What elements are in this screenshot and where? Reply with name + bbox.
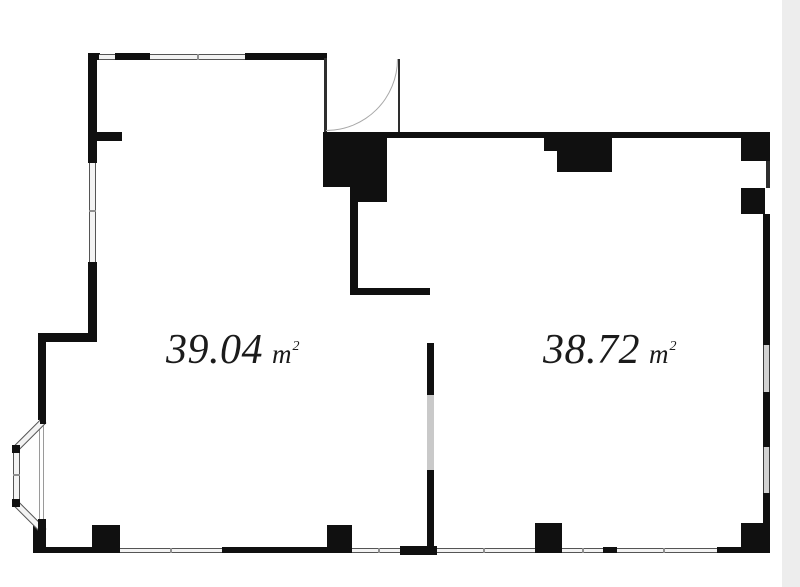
door-swing-arc xyxy=(326,59,398,131)
floor-plan: 39.04m2 38.72m2 xyxy=(0,0,800,587)
wall-bottom-seg-3 xyxy=(717,547,741,553)
wall-block-entry-ext xyxy=(350,187,387,202)
wall-right-seg-2 xyxy=(763,392,770,447)
wall-pillar-bottom-1 xyxy=(92,525,120,553)
wall-block-top-step xyxy=(544,132,557,151)
window-mullion xyxy=(89,210,96,212)
bay-chord-line-inner xyxy=(39,420,40,522)
window-mullion xyxy=(483,548,485,554)
wall-block-top-main xyxy=(557,132,612,172)
wall-partition-upper-vertical xyxy=(350,202,358,295)
wall-left-seg-3 xyxy=(38,342,46,420)
wall-pillar-bottom-2 xyxy=(327,525,352,553)
left-room-area-label: 39.04m2 xyxy=(166,329,300,371)
right-room-area-exponent: 2 xyxy=(670,339,677,354)
wall-right-block-2 xyxy=(741,188,765,214)
bay-window-front xyxy=(13,449,20,502)
wall-bottom-seg-2 xyxy=(222,547,327,553)
wall-corner-bottom-right-block xyxy=(741,523,770,553)
wall-partition-lower-seg-2 xyxy=(427,470,434,548)
wall-right-seg-3 xyxy=(763,493,770,523)
left-room-area-exponent: 2 xyxy=(293,339,300,354)
wall-left-seg-1 xyxy=(88,53,97,163)
window-bottom-2 xyxy=(352,548,403,554)
window-bottom-1 xyxy=(120,548,222,554)
door-jamb xyxy=(398,59,400,133)
bay-corner-cap-3 xyxy=(12,499,20,507)
window-bottom-5 xyxy=(617,548,717,554)
window-mullion xyxy=(663,548,665,554)
wall-bottom-tick-block xyxy=(603,547,617,553)
wall-partition-horizontal xyxy=(350,288,430,295)
window-bottom-4 xyxy=(562,548,603,554)
window-mullion xyxy=(378,548,380,554)
right-room-area-label: 38.72m2 xyxy=(543,329,677,371)
bay-chord-line-outer xyxy=(43,420,44,522)
wall-left-jog xyxy=(38,333,97,342)
left-room-area-unit: m xyxy=(272,339,292,369)
right-gutter xyxy=(782,0,800,587)
wall-top-seg-2 xyxy=(245,53,327,60)
wall-top-seg-1 xyxy=(115,53,150,60)
bay-corner-cap-2 xyxy=(12,445,20,453)
window-mullion xyxy=(170,548,172,554)
wall-partition-gray-segment xyxy=(427,395,434,470)
right-room-area-unit: m xyxy=(649,339,669,369)
wall-partition-lower-seg-1 xyxy=(427,343,434,395)
window-bottom-3 xyxy=(437,548,535,554)
bay-corner-cap-1 xyxy=(40,416,46,424)
window-right-upper xyxy=(763,345,770,392)
window-mullion xyxy=(582,548,584,554)
window-left xyxy=(89,163,96,262)
window-top-large xyxy=(150,54,245,60)
left-room-area-value: 39.04 xyxy=(166,327,263,373)
wall-pillar-bottom-3 xyxy=(535,523,562,553)
wall-corner-top-right-block xyxy=(741,132,770,161)
window-right-lower xyxy=(763,447,770,493)
window-mullion xyxy=(197,54,199,60)
window-mullion xyxy=(13,474,20,476)
wall-block-entry-main xyxy=(323,132,387,187)
wall-left-seg-2 xyxy=(88,262,97,342)
window-top-small xyxy=(99,54,116,60)
wall-left-seg-4 xyxy=(38,522,46,553)
wall-left-stub xyxy=(97,132,122,141)
wall-right-thin-gap xyxy=(766,161,770,188)
wall-right-seg-1 xyxy=(763,214,770,345)
right-room-area-value: 38.72 xyxy=(543,327,640,373)
